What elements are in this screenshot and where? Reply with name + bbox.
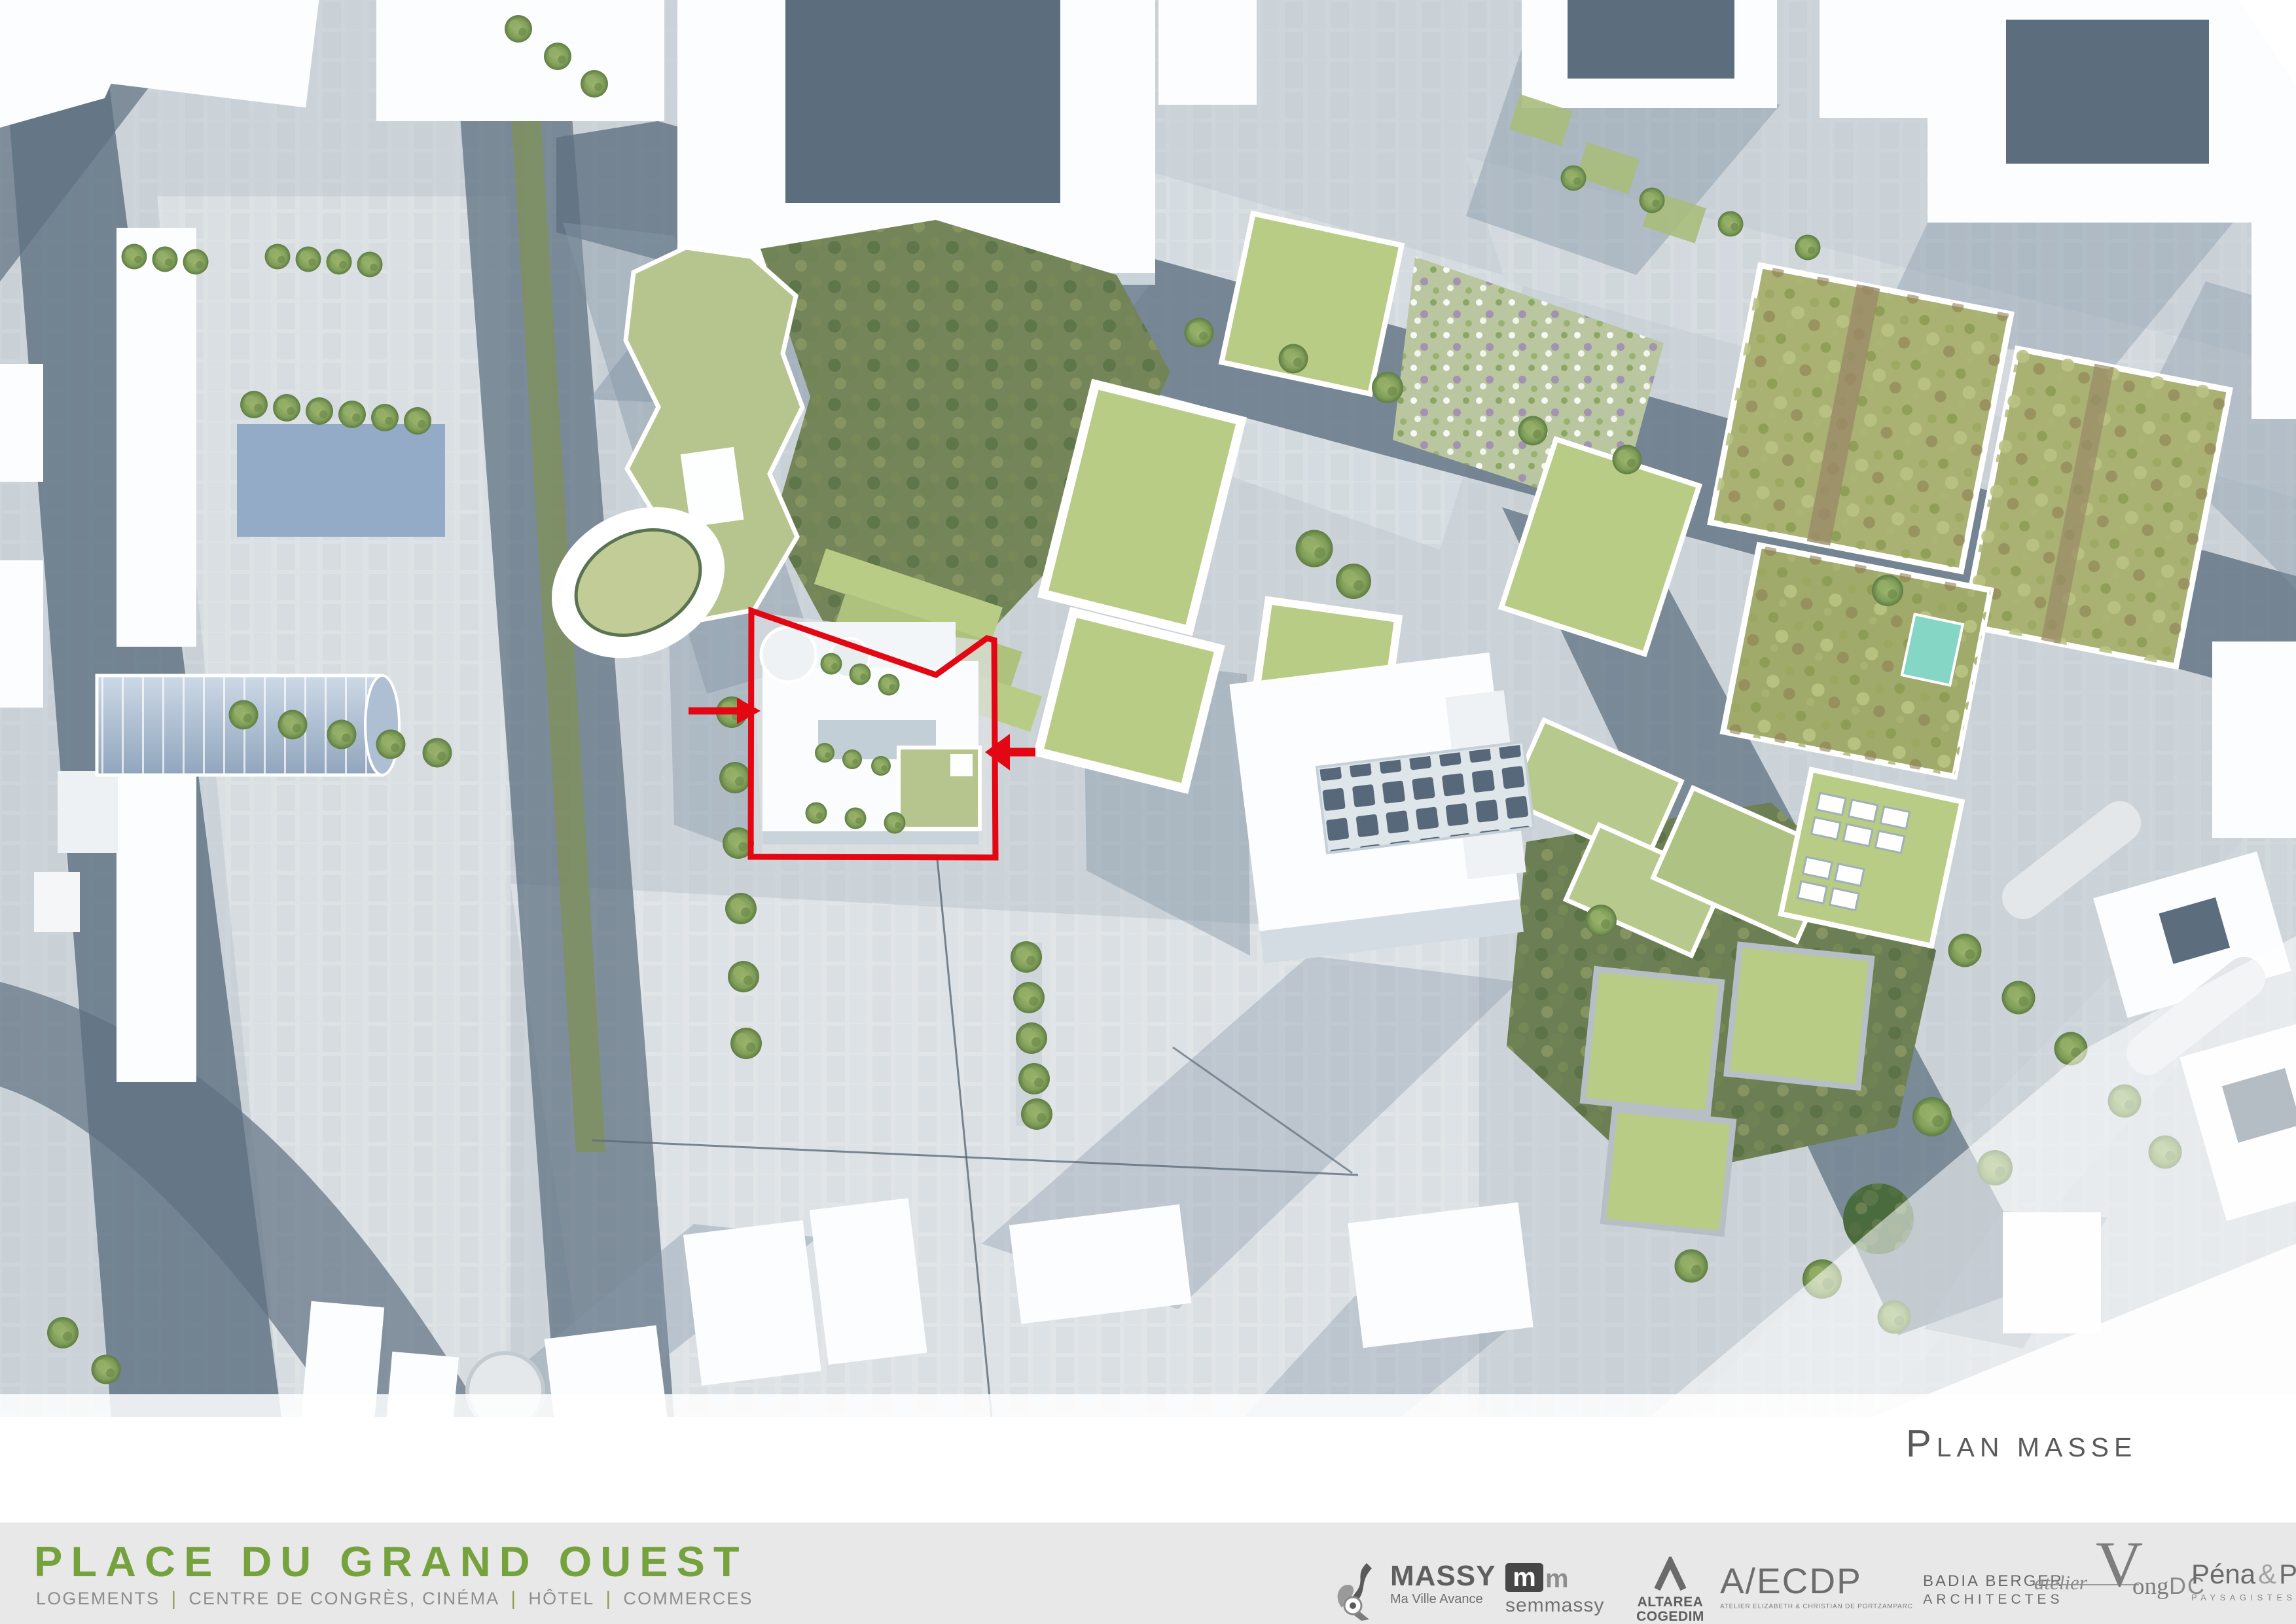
- altarea-line1: ALTAREA: [1631, 1595, 1710, 1610]
- program-separator: |: [499, 1588, 528, 1610]
- program-item: LOGEMENTS: [36, 1589, 160, 1608]
- project-site: [753, 612, 992, 857]
- congress-center-building: [1229, 649, 1546, 964]
- aecdp-logo-caption: ATELIER ELIZABETH & CHRISTIAN DE PORTZAM…: [1720, 1603, 1913, 1610]
- logo-altarea-cogedim: ALTAREA COGEDIM: [1631, 1557, 1710, 1624]
- logo-atelier-vong-dc: atelier V ong DC: [2034, 1534, 2185, 1613]
- program-separator: |: [160, 1588, 188, 1610]
- program-separator: |: [594, 1588, 623, 1610]
- semmassy-logo-icon: m m: [1505, 1559, 1604, 1592]
- semmassy-glyph: m: [1505, 1563, 1543, 1592]
- massy-logo-name: MASSY: [1390, 1562, 1496, 1591]
- program-item: HÔTEL: [528, 1589, 594, 1608]
- logo-pena-pena: Péna&Peña PAYSAGISTES DPLG: [2191, 1561, 2296, 1602]
- altarea-line2: COGEDIM: [1631, 1610, 1710, 1624]
- presentation-board: PLAN MASSE PLACE DU GRAND OUEST LOGEMENT…: [0, 0, 2296, 1624]
- pena-part2: Peña: [2279, 1559, 2296, 1589]
- vong-rest: ong: [2132, 1572, 2169, 1600]
- massy-logo-icon: [1335, 1562, 1384, 1622]
- semmassy-glyph: m: [1545, 1566, 1569, 1592]
- footer-band: PLACE DU GRAND OUEST LOGEMENTS|CENTRE DE…: [0, 1523, 2296, 1624]
- logo-massy: MASSY Ma Ville Avance: [1335, 1562, 1496, 1622]
- site-plan-rendering: [0, 0, 2296, 1417]
- pena-part1: Péna: [2191, 1559, 2255, 1589]
- aecdp-logo-name: A/ECDP: [1720, 1563, 1913, 1599]
- program-item: COMMERCES: [623, 1589, 753, 1608]
- project-title: PLACE DU GRAND OUEST: [34, 1537, 748, 1586]
- plan-caption-rest: LAN MASSE: [1937, 1432, 2138, 1462]
- pena-ampersand: &: [2255, 1559, 2279, 1589]
- program-item: CENTRE DE CONGRÈS, CINÉMA: [188, 1589, 499, 1608]
- altarea-mark-icon: [1652, 1557, 1689, 1591]
- logo-semmassy: m m semmassy: [1505, 1559, 1604, 1617]
- massy-logo-tagline: Ma Ville Avance: [1390, 1592, 1496, 1607]
- site-plan-image: [0, 0, 2296, 1417]
- pena-caption: PAYSAGISTES DPLG: [2191, 1593, 2296, 1602]
- plan-caption: PLAN MASSE: [1906, 1422, 2137, 1466]
- vong-script-text: atelier: [2034, 1571, 2087, 1595]
- logo-aecdp: A/ECDP ATELIER ELIZABETH & CHRISTIAN DE …: [1720, 1563, 1913, 1610]
- plan-caption-initial: P: [1906, 1422, 1937, 1465]
- program-list: LOGEMENTS|CENTRE DE CONGRÈS, CINÉMA|HÔTE…: [36, 1588, 753, 1610]
- semmassy-logo-name: semmassy: [1505, 1595, 1604, 1617]
